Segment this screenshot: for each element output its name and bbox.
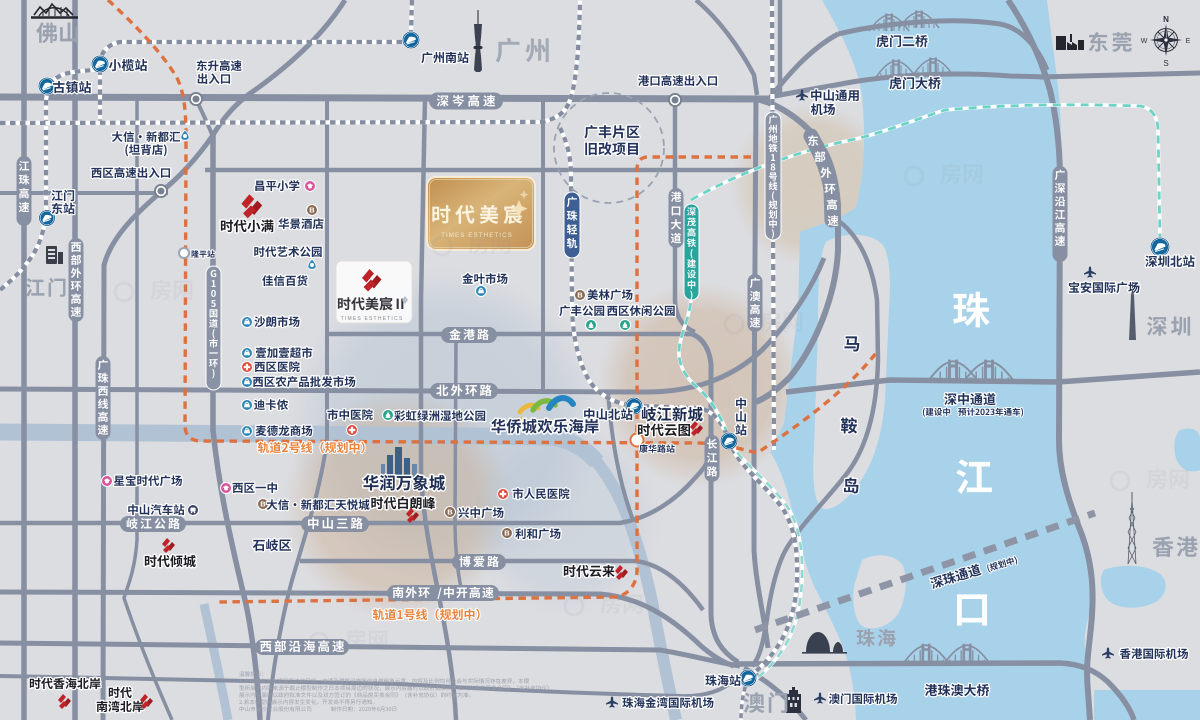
svg-text:B: B [577,291,583,300]
svg-text:S: S [1163,59,1168,68]
svg-text:B: B [260,500,266,509]
svg-text:B: B [447,508,453,517]
svg-text:N: N [1163,15,1169,24]
svg-text:B: B [504,529,510,538]
svg-text:B: B [309,206,315,215]
svg-text:TIMES ESTHETICS: TIMES ESTHETICS [341,316,404,322]
svg-text:W: W [1141,38,1148,45]
svg-text:E: E [1186,38,1191,45]
